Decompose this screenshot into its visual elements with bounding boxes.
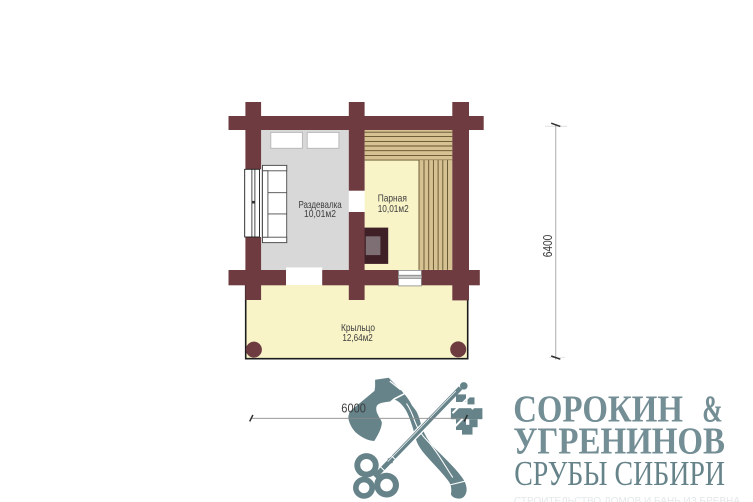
svg-text:6000: 6000 xyxy=(341,400,366,415)
svg-text:12,64м2: 12,64м2 xyxy=(342,333,373,344)
svg-text:СРУБЫ СИБИРИ: СРУБЫ СИБИРИ xyxy=(514,455,725,493)
svg-text:10,01м2: 10,01м2 xyxy=(304,209,336,220)
svg-text:10,01м2: 10,01м2 xyxy=(378,204,409,215)
svg-text:6400: 6400 xyxy=(540,235,555,258)
svg-text:СТРОИТЕЛЬСТВО ДОМОВ И БАНЬ ИЗ: СТРОИТЕЛЬСТВО ДОМОВ И БАНЬ ИЗ БРЕВНА xyxy=(514,496,740,502)
